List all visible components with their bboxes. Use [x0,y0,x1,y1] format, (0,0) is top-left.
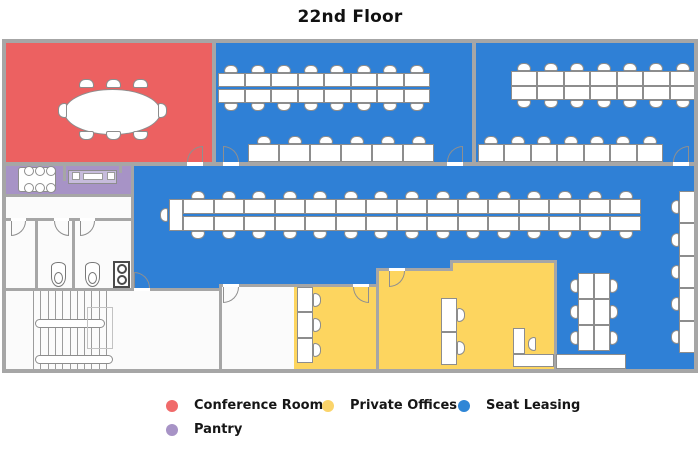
desk-row-a-top [377,73,404,87]
chair [544,100,558,108]
legend-item-private-offices: Private Offices [322,398,457,413]
room-seat-leasing-main [131,268,376,284]
desk-row-a-top [324,73,351,87]
chair [671,265,679,279]
legend-label: Conference Room [194,398,323,413]
chair [412,136,426,144]
desk-cluster-south [578,299,594,325]
chair [160,208,168,222]
chair [405,191,419,199]
floor-plan [2,39,698,373]
desk-row-central [580,199,611,214]
door-threshold [134,288,150,291]
chair [484,136,498,144]
chair [436,231,450,239]
floorplan-page: { "title": "22nd Floor", "legend": { "it… [0,0,700,450]
chair [619,191,633,199]
door-threshold [187,162,203,166]
desk-row-central [488,199,519,214]
l-desk-vertical [513,328,525,354]
chair [671,297,679,311]
desk-row-b-top [537,86,563,101]
chair [517,63,531,71]
chair [597,63,611,71]
legend-dot-private-offices [322,400,334,412]
door-threshold [223,162,239,166]
stairwell [33,291,111,369]
desk-row-a-bottom [341,144,372,162]
l-desk-base [513,354,554,367]
chair [222,191,236,199]
desk-row-b-top [564,71,590,86]
chair [671,233,679,247]
desk-row-b-top [511,86,537,101]
door-arc [11,221,26,236]
desk-row-a-bottom [310,144,341,162]
desk-row-a-top [245,89,272,103]
desk-row-central [458,216,489,231]
chair [58,103,67,118]
legend-dot-conference-room [166,400,178,412]
desk-row-b-bottom [637,144,663,162]
desk-row-central [549,199,580,214]
chair [436,191,450,199]
desk-row-central [427,216,458,231]
desk-row-central [183,216,214,231]
shelf [556,354,626,369]
desk-row-b-bottom [531,144,557,162]
door-arc [223,287,239,303]
chair [35,183,45,193]
chair [588,191,602,199]
conference-table [64,89,161,135]
desk-cluster-south [594,273,610,299]
wall [376,268,453,271]
wall [219,284,222,372]
desk-row-a-top [298,73,325,87]
chair [350,136,364,144]
chair [497,191,511,199]
chair [570,305,578,319]
chair [671,200,679,214]
chair [544,63,558,71]
chair [527,191,541,199]
desk-row-a-top [298,89,325,103]
desk-row-central [427,199,458,214]
wall [472,43,476,162]
desk-row-b-top [511,71,537,86]
legend-label: Pantry [194,422,242,437]
chair [283,191,297,199]
stair-stringer [87,307,113,349]
desk-row-central [366,216,397,231]
chair [288,136,302,144]
wall [35,221,38,288]
desk-row-b-top [670,71,696,86]
desk-cluster-south [594,325,610,351]
chair [466,191,480,199]
desk-row-central [549,216,580,231]
toilet [85,262,100,287]
desk-row-central [244,216,275,231]
wall [119,164,122,173]
chair [649,63,663,71]
chair [313,191,327,199]
chair [191,191,205,199]
chair [257,136,271,144]
wall [6,162,696,166]
desk-row-b-top [643,86,669,101]
desk-col-right-wall [679,288,696,320]
desk-row-central [610,216,641,231]
chair [383,65,397,73]
desk-row-central [488,216,519,231]
sink-unit [113,261,130,288]
chair [558,191,572,199]
stair-rail [35,355,113,364]
chair [643,136,657,144]
chair [313,293,321,307]
desk-row-a-bottom [372,144,403,162]
desk-row-central [214,199,245,214]
legend-item-pantry: Pantry [166,422,242,437]
desk-row-b-top [590,71,616,86]
desk-row-b-top [617,71,643,86]
desk-row-b-top [537,71,563,86]
desk-row-a-top [404,89,431,103]
desk-cluster-south [578,273,594,299]
chair [410,65,424,73]
chair [597,100,611,108]
chair [330,65,344,73]
chair [319,136,333,144]
room-seat-leasing-main [131,260,450,268]
desk-row-central [275,216,306,231]
chair [570,331,578,345]
counter-item [107,172,115,180]
desk-row-central [244,199,275,214]
legend-dot-seat-leasing [458,400,470,412]
chair [570,279,578,293]
door-threshold [447,162,463,166]
legend-label: Private Offices [350,398,457,413]
legend-label: Seat Leasing [486,398,580,413]
desk-row-b-bottom [584,144,610,162]
chair [381,136,395,144]
chair [133,131,148,140]
counter-item [72,172,80,180]
counter-item [83,173,103,180]
desk-row-central [397,199,428,214]
desk-row-central [580,216,611,231]
desk-col-office-2 [441,332,457,366]
desk-row-b-bottom [610,144,636,162]
desk-col-right-wall [679,256,696,288]
desk-row-a-top [218,73,245,87]
chair [304,65,318,73]
desk-row-a-bottom [403,144,434,162]
chair [79,131,94,140]
chair [528,337,536,351]
legend-dot-pantry [166,424,178,436]
desk-row-central [610,199,641,214]
desk-col-right-wall [679,223,696,255]
desk-col-right-wall [679,321,696,353]
door-arc [54,221,69,236]
desk-row-a-top [377,89,404,103]
chair [277,65,291,73]
wall [212,43,216,162]
desk-cluster-south [578,325,594,351]
wall [376,268,379,372]
desk-row-b-bottom [504,144,530,162]
desk-row-central [366,199,397,214]
desk-cluster-south [594,299,610,325]
desk-row-central [519,199,550,214]
desk-row-central [183,199,214,214]
chair [46,183,56,193]
chair [46,166,56,176]
chair [616,136,630,144]
desk-endcap [169,199,183,231]
chair [133,79,148,88]
desk-row-central [214,216,245,231]
chair [590,136,604,144]
legend-item-seat-leasing: Seat Leasing [458,398,580,413]
desk-row-central [275,199,306,214]
chair [558,231,572,239]
chair [511,136,525,144]
wall [72,221,75,288]
desk-col-office-1 [297,338,313,363]
desk-row-a-top [404,73,431,87]
chair [357,65,371,73]
desk-row-central [336,199,367,214]
desk-row-b-top [564,86,590,101]
desk-col-office-1 [297,287,313,312]
desk-row-b-top [617,86,643,101]
chair [224,65,238,73]
desk-row-a-top [271,73,298,87]
floor-title: 22nd Floor [0,7,700,27]
desk-row-a-top [324,89,351,103]
chair [537,136,551,144]
chair [623,63,637,71]
toilet [51,262,66,287]
desk-row-a-top [218,89,245,103]
chair [24,166,34,176]
wall [450,260,557,263]
legend-item-conference-room: Conference Room [166,398,323,413]
chair [79,79,94,88]
chair [497,231,511,239]
chair [106,79,121,88]
desk-row-a-top [245,73,272,87]
chair [158,103,167,118]
door-threshold [673,162,689,166]
chair [251,65,265,73]
desk-col-right-wall [679,191,696,223]
desk-row-a-top [351,89,378,103]
chair [671,330,679,344]
desk-row-b-top [670,86,696,101]
chair [35,166,45,176]
chair [252,191,266,199]
chair [344,191,358,199]
desk-row-central [305,199,336,214]
desk-row-a-bottom [248,144,279,162]
wall [63,164,66,181]
desk-row-central [336,216,367,231]
stair-tread [33,291,34,369]
desk-row-a-top [351,73,378,87]
chair [570,63,584,71]
chair [106,131,121,140]
desk-row-central [305,216,336,231]
chair [24,183,34,193]
chair [564,136,578,144]
wall [6,194,131,197]
chair [374,191,388,199]
desk-row-central [397,216,428,231]
desk-row-b-bottom [478,144,504,162]
desk-row-central [519,216,550,231]
desk-row-a-top [271,89,298,103]
desk-row-a-bottom [279,144,310,162]
desk-row-b-top [590,86,616,101]
desk-row-b-bottom [557,144,583,162]
desk-col-office-2 [441,298,457,332]
desk-row-b-top [643,71,669,86]
desk-row-central [458,199,489,214]
desk-col-office-1 [297,312,313,337]
chair [676,63,690,71]
door-arc [80,221,95,236]
